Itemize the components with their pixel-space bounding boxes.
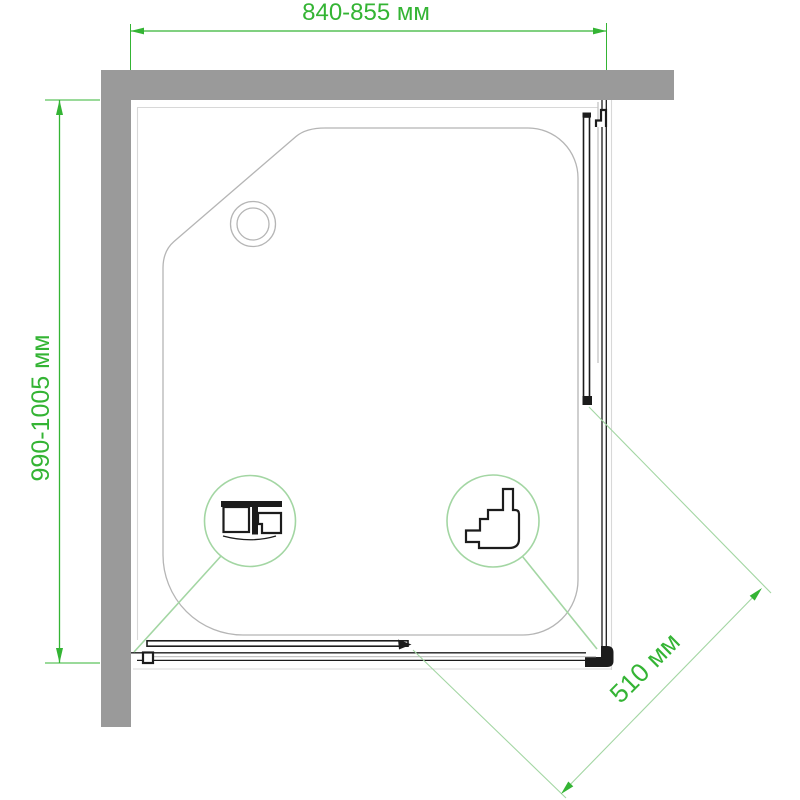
profile-right-step: [258, 513, 281, 533]
bottom-track-wall-profile: [143, 653, 153, 664]
right-door-roller: [583, 396, 593, 405]
shower-enclosure-plan-diagram: 840-855 мм 990-1005 мм 510 мм: [0, 0, 800, 800]
diagram-canvas: 840-855 мм 990-1005 мм 510 мм: [0, 0, 800, 800]
left-dimension-label: 990-1005 мм: [27, 335, 55, 482]
profile-left-box: [224, 507, 250, 532]
bottom-sliding-door-panel: [147, 641, 408, 646]
right-sliding-door-panel: [584, 117, 590, 403]
right-door-top-cap: [583, 113, 592, 118]
top-dimension-label: 840-855 мм: [302, 0, 430, 26]
